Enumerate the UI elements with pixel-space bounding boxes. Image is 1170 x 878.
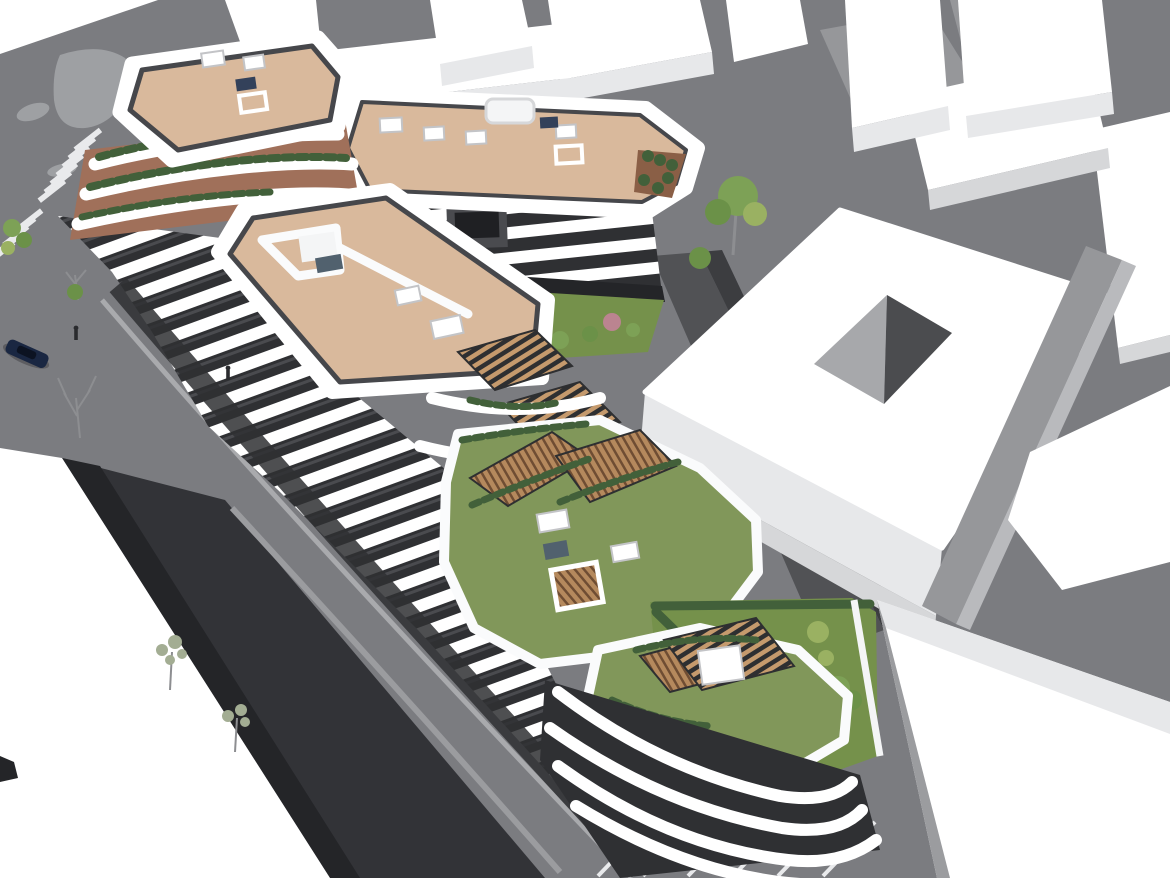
- street-bush: [67, 284, 83, 300]
- garden-bush: [551, 331, 569, 349]
- street-bush: [1, 241, 15, 255]
- hedge-bush: [638, 174, 650, 186]
- hedge-bush: [642, 150, 654, 162]
- skylight: [611, 542, 639, 562]
- garden-bush: [626, 323, 640, 337]
- skylight: [243, 55, 265, 71]
- pedestrian-body: [74, 330, 78, 340]
- render-canvas: [0, 0, 1170, 878]
- tree-canopy: [743, 202, 767, 226]
- sparse-tree-canopy: [222, 710, 234, 722]
- garden-bush: [582, 326, 598, 342]
- garden-bush-pink: [603, 313, 621, 331]
- skylight: [466, 130, 487, 144]
- skylight: [556, 124, 577, 138]
- garden-bush: [818, 650, 834, 666]
- pedestrian-body: [226, 370, 230, 380]
- garden-bush: [807, 621, 829, 643]
- roof-hatch-open: [239, 92, 267, 112]
- skylight: [380, 117, 403, 132]
- framed-deck-patio: [551, 562, 603, 609]
- sparse-tree-canopy: [156, 644, 168, 656]
- block-b-roof-hatch-structure: [486, 99, 534, 123]
- hedge-bush: [662, 172, 674, 184]
- hedge-bush: [666, 159, 678, 171]
- sparse-tree-canopy: [165, 655, 175, 665]
- pedestrian-head: [74, 326, 79, 331]
- street-bush: [16, 232, 32, 248]
- roof-pavilion-box: [698, 645, 744, 685]
- hedge-bush: [654, 154, 666, 166]
- skylight: [201, 51, 225, 68]
- street-bush: [3, 219, 21, 237]
- tree-canopy: [705, 199, 731, 225]
- roof-hatch-open: [556, 145, 583, 163]
- sparse-tree-canopy: [177, 649, 187, 659]
- sparse-tree-canopy: [235, 704, 247, 716]
- pedestrian-head: [226, 366, 231, 371]
- skylight: [537, 510, 570, 533]
- solar-skylight-panel: [540, 117, 559, 129]
- skylight: [424, 126, 445, 140]
- tree-canopy-small: [689, 247, 711, 269]
- sparse-tree-canopy: [240, 717, 250, 727]
- sparse-tree-canopy: [168, 635, 182, 649]
- hedge-bush: [652, 182, 664, 194]
- garden-hedge-row: [655, 604, 870, 606]
